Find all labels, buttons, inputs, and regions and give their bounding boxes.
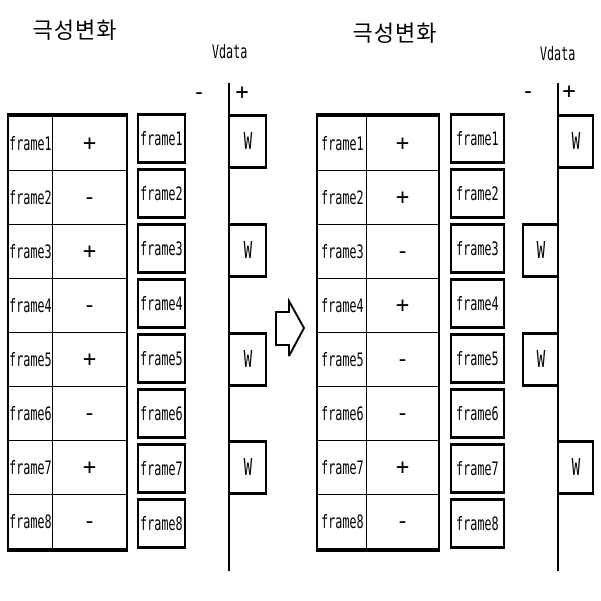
frame-box: frame6 <box>450 388 505 439</box>
plus-label: + <box>233 83 251 103</box>
table-row: frame7 + <box>9 441 126 495</box>
frame-box: frame8 <box>450 498 505 549</box>
w-box: W <box>557 440 594 495</box>
polarity-cell: - <box>53 387 126 440</box>
table-row: frame8 - <box>318 495 438 548</box>
w-label: W <box>243 129 252 155</box>
polarity-cell: + <box>53 333 126 386</box>
w-box: W <box>557 114 594 169</box>
polarity-change-diagram: { "meta": { "ink_color": "#000000", "bac… <box>0 0 601 601</box>
vdata-label: Vdata <box>518 43 598 65</box>
frame-cell: frame4 <box>9 279 53 332</box>
frame-cell: frame2 <box>9 171 53 224</box>
frame-cell: frame1 <box>318 117 367 170</box>
w-label: W <box>243 347 252 373</box>
frame-box-stack: frame1 frame2 frame3 frame4 frame5 frame… <box>137 113 186 553</box>
polarity-cell: - <box>53 495 126 548</box>
frame-box: frame5 <box>137 333 186 384</box>
table-row: frame4 - <box>9 279 126 333</box>
w-label: W <box>243 455 252 481</box>
polarity-cell: + <box>367 441 438 494</box>
frame-cell: frame1 <box>9 117 53 170</box>
frame-box: frame8 <box>137 498 186 549</box>
frame-cell: frame8 <box>318 495 367 548</box>
w-box: W <box>228 332 267 387</box>
frame-box: frame3 <box>450 223 505 274</box>
frame-box: frame6 <box>137 388 186 439</box>
table-row: frame2 - <box>9 171 126 225</box>
frame-box: frame2 <box>137 168 186 219</box>
frame-box: frame4 <box>450 278 505 329</box>
polarity-table: frame1 + frame2 - frame3 + frame4 - fram… <box>7 113 128 552</box>
polarity-cell: + <box>367 117 438 170</box>
table-row: frame6 - <box>318 387 438 441</box>
w-box: W <box>522 332 559 387</box>
table-row: frame5 + <box>9 333 126 387</box>
table-row: frame6 - <box>9 387 126 441</box>
transform-arrow-icon <box>274 298 306 360</box>
w-box: W <box>228 223 267 278</box>
frame-cell: frame5 <box>318 333 367 386</box>
polarity-cell: - <box>367 495 438 548</box>
vdata-label: Vdata <box>190 41 270 63</box>
frame-box: frame1 <box>450 113 505 164</box>
frame-cell: frame7 <box>9 441 53 494</box>
w-label: W <box>536 238 545 264</box>
frame-box: frame3 <box>137 223 186 274</box>
w-label: W <box>571 455 580 481</box>
minus-label: - <box>190 83 208 103</box>
frame-cell: frame6 <box>318 387 367 440</box>
table-row: frame1 + <box>9 117 126 171</box>
plus-label: + <box>560 82 578 102</box>
table-row: frame7 + <box>318 441 438 495</box>
w-box: W <box>228 114 267 169</box>
table-row: frame2 + <box>318 171 438 225</box>
frame-cell: frame5 <box>9 333 53 386</box>
polarity-table: frame1 + frame2 + frame3 - frame4 + fram… <box>316 113 440 552</box>
minus-label: - <box>519 82 537 102</box>
table-row: frame3 + <box>9 225 126 279</box>
table-row: frame1 + <box>318 117 438 171</box>
polarity-cell: + <box>367 171 438 224</box>
frame-cell: frame4 <box>318 279 367 332</box>
frame-box-stack: frame1 frame2 frame3 frame4 frame5 frame… <box>450 113 505 553</box>
polarity-cell: - <box>367 225 438 278</box>
w-label: W <box>536 347 545 373</box>
frame-cell: frame2 <box>318 171 367 224</box>
frame-box: frame7 <box>450 443 505 494</box>
w-box: W <box>522 223 559 278</box>
frame-cell: frame8 <box>9 495 53 548</box>
polarity-cell: - <box>367 387 438 440</box>
table-row: frame5 - <box>318 333 438 387</box>
frame-cell: frame3 <box>318 225 367 278</box>
frame-cell: frame6 <box>9 387 53 440</box>
w-label: W <box>571 129 580 155</box>
polarity-cell: - <box>53 171 126 224</box>
table-row: frame8 - <box>9 495 126 548</box>
polarity-cell: + <box>367 279 438 332</box>
polarity-cell: + <box>53 441 126 494</box>
polarity-cell: + <box>53 117 126 170</box>
polarity-cell: - <box>367 333 438 386</box>
polarity-title: 극성변화 <box>20 13 130 45</box>
frame-cell: frame3 <box>9 225 53 278</box>
polarity-title: 극성변화 <box>340 16 450 48</box>
table-row: frame3 - <box>318 225 438 279</box>
polarity-cell: - <box>53 279 126 332</box>
frame-box: frame7 <box>137 443 186 494</box>
w-label: W <box>243 238 252 264</box>
frame-cell: frame7 <box>318 441 367 494</box>
table-row: frame4 + <box>318 279 438 333</box>
frame-box: frame1 <box>137 113 186 164</box>
polarity-cell: + <box>53 225 126 278</box>
frame-box: frame2 <box>450 168 505 219</box>
frame-box: frame5 <box>450 333 505 384</box>
frame-box: frame4 <box>137 278 186 329</box>
w-box: W <box>228 440 267 495</box>
